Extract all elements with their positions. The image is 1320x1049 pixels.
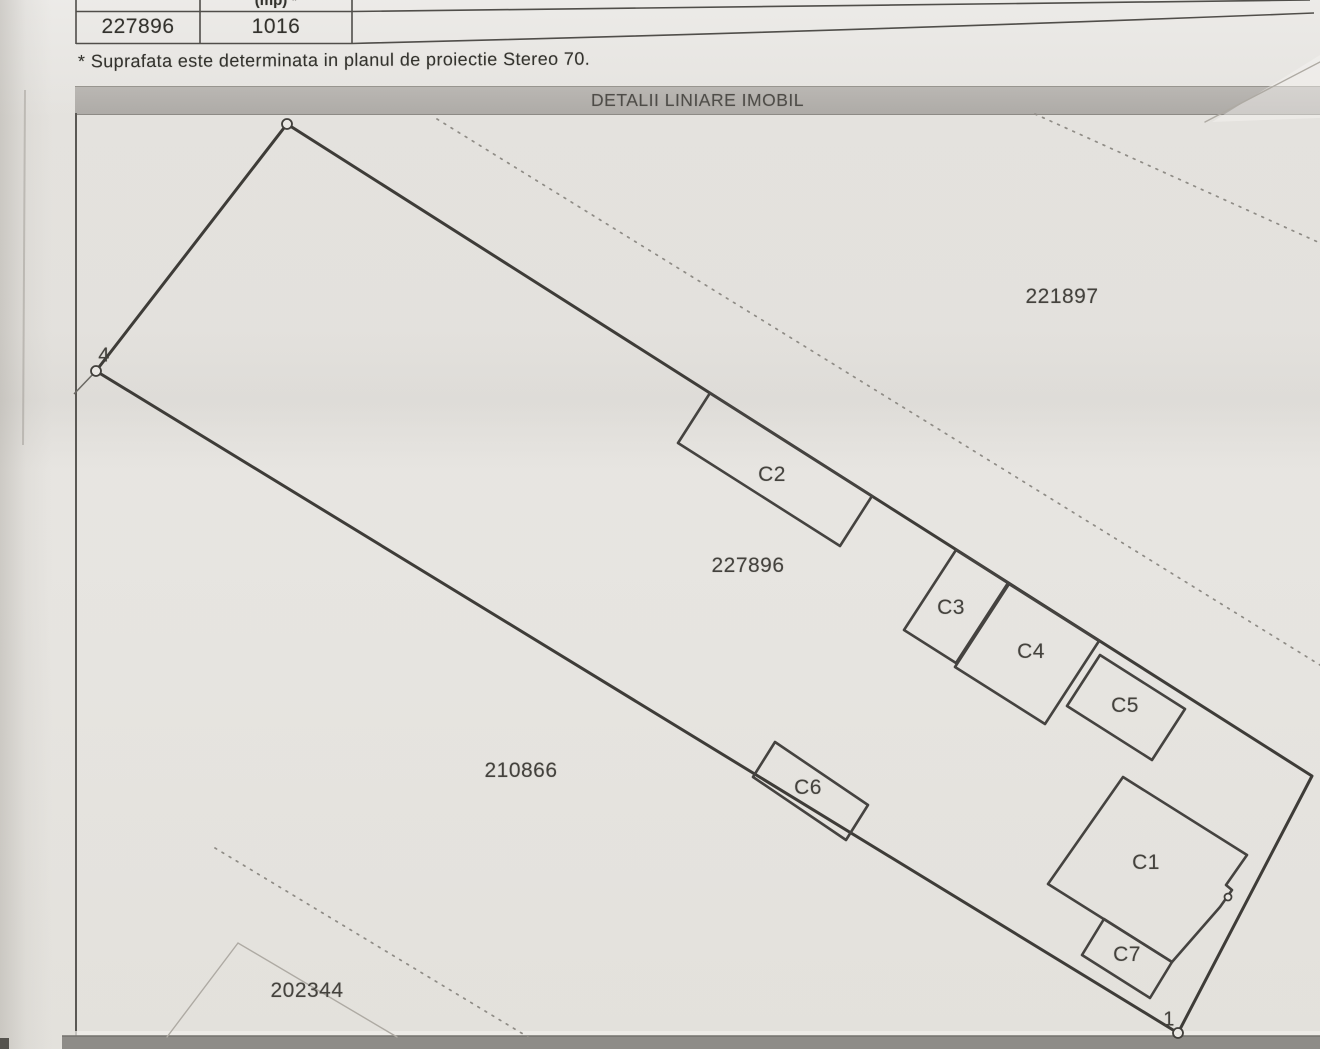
parcel-number-202344: 202344 xyxy=(270,979,343,1003)
scanned-cadastral-document: (mp) * 227896 1016 * Suprafata este dete… xyxy=(0,0,1320,1049)
building-label-c4: C4 xyxy=(1017,640,1045,664)
building-label-c1: C1 xyxy=(1132,851,1160,875)
vertex-label-1: 1 xyxy=(1163,1009,1175,1032)
parcel-number-221897: 221897 xyxy=(1025,285,1098,309)
building-label-c5: C5 xyxy=(1111,694,1139,718)
parcel-number-210866: 210866 xyxy=(484,759,557,783)
parcel-number-227896: 227896 xyxy=(711,554,784,578)
building-label-c2: C2 xyxy=(758,463,786,487)
vertex-label-4: 4 xyxy=(98,345,110,368)
map-labels: C1C2C3C4C5C6C741221897227896210866202344 xyxy=(0,0,1320,1049)
building-label-c6: C6 xyxy=(794,776,822,800)
building-label-c7: C7 xyxy=(1113,943,1141,967)
building-label-c3: C3 xyxy=(937,596,965,620)
